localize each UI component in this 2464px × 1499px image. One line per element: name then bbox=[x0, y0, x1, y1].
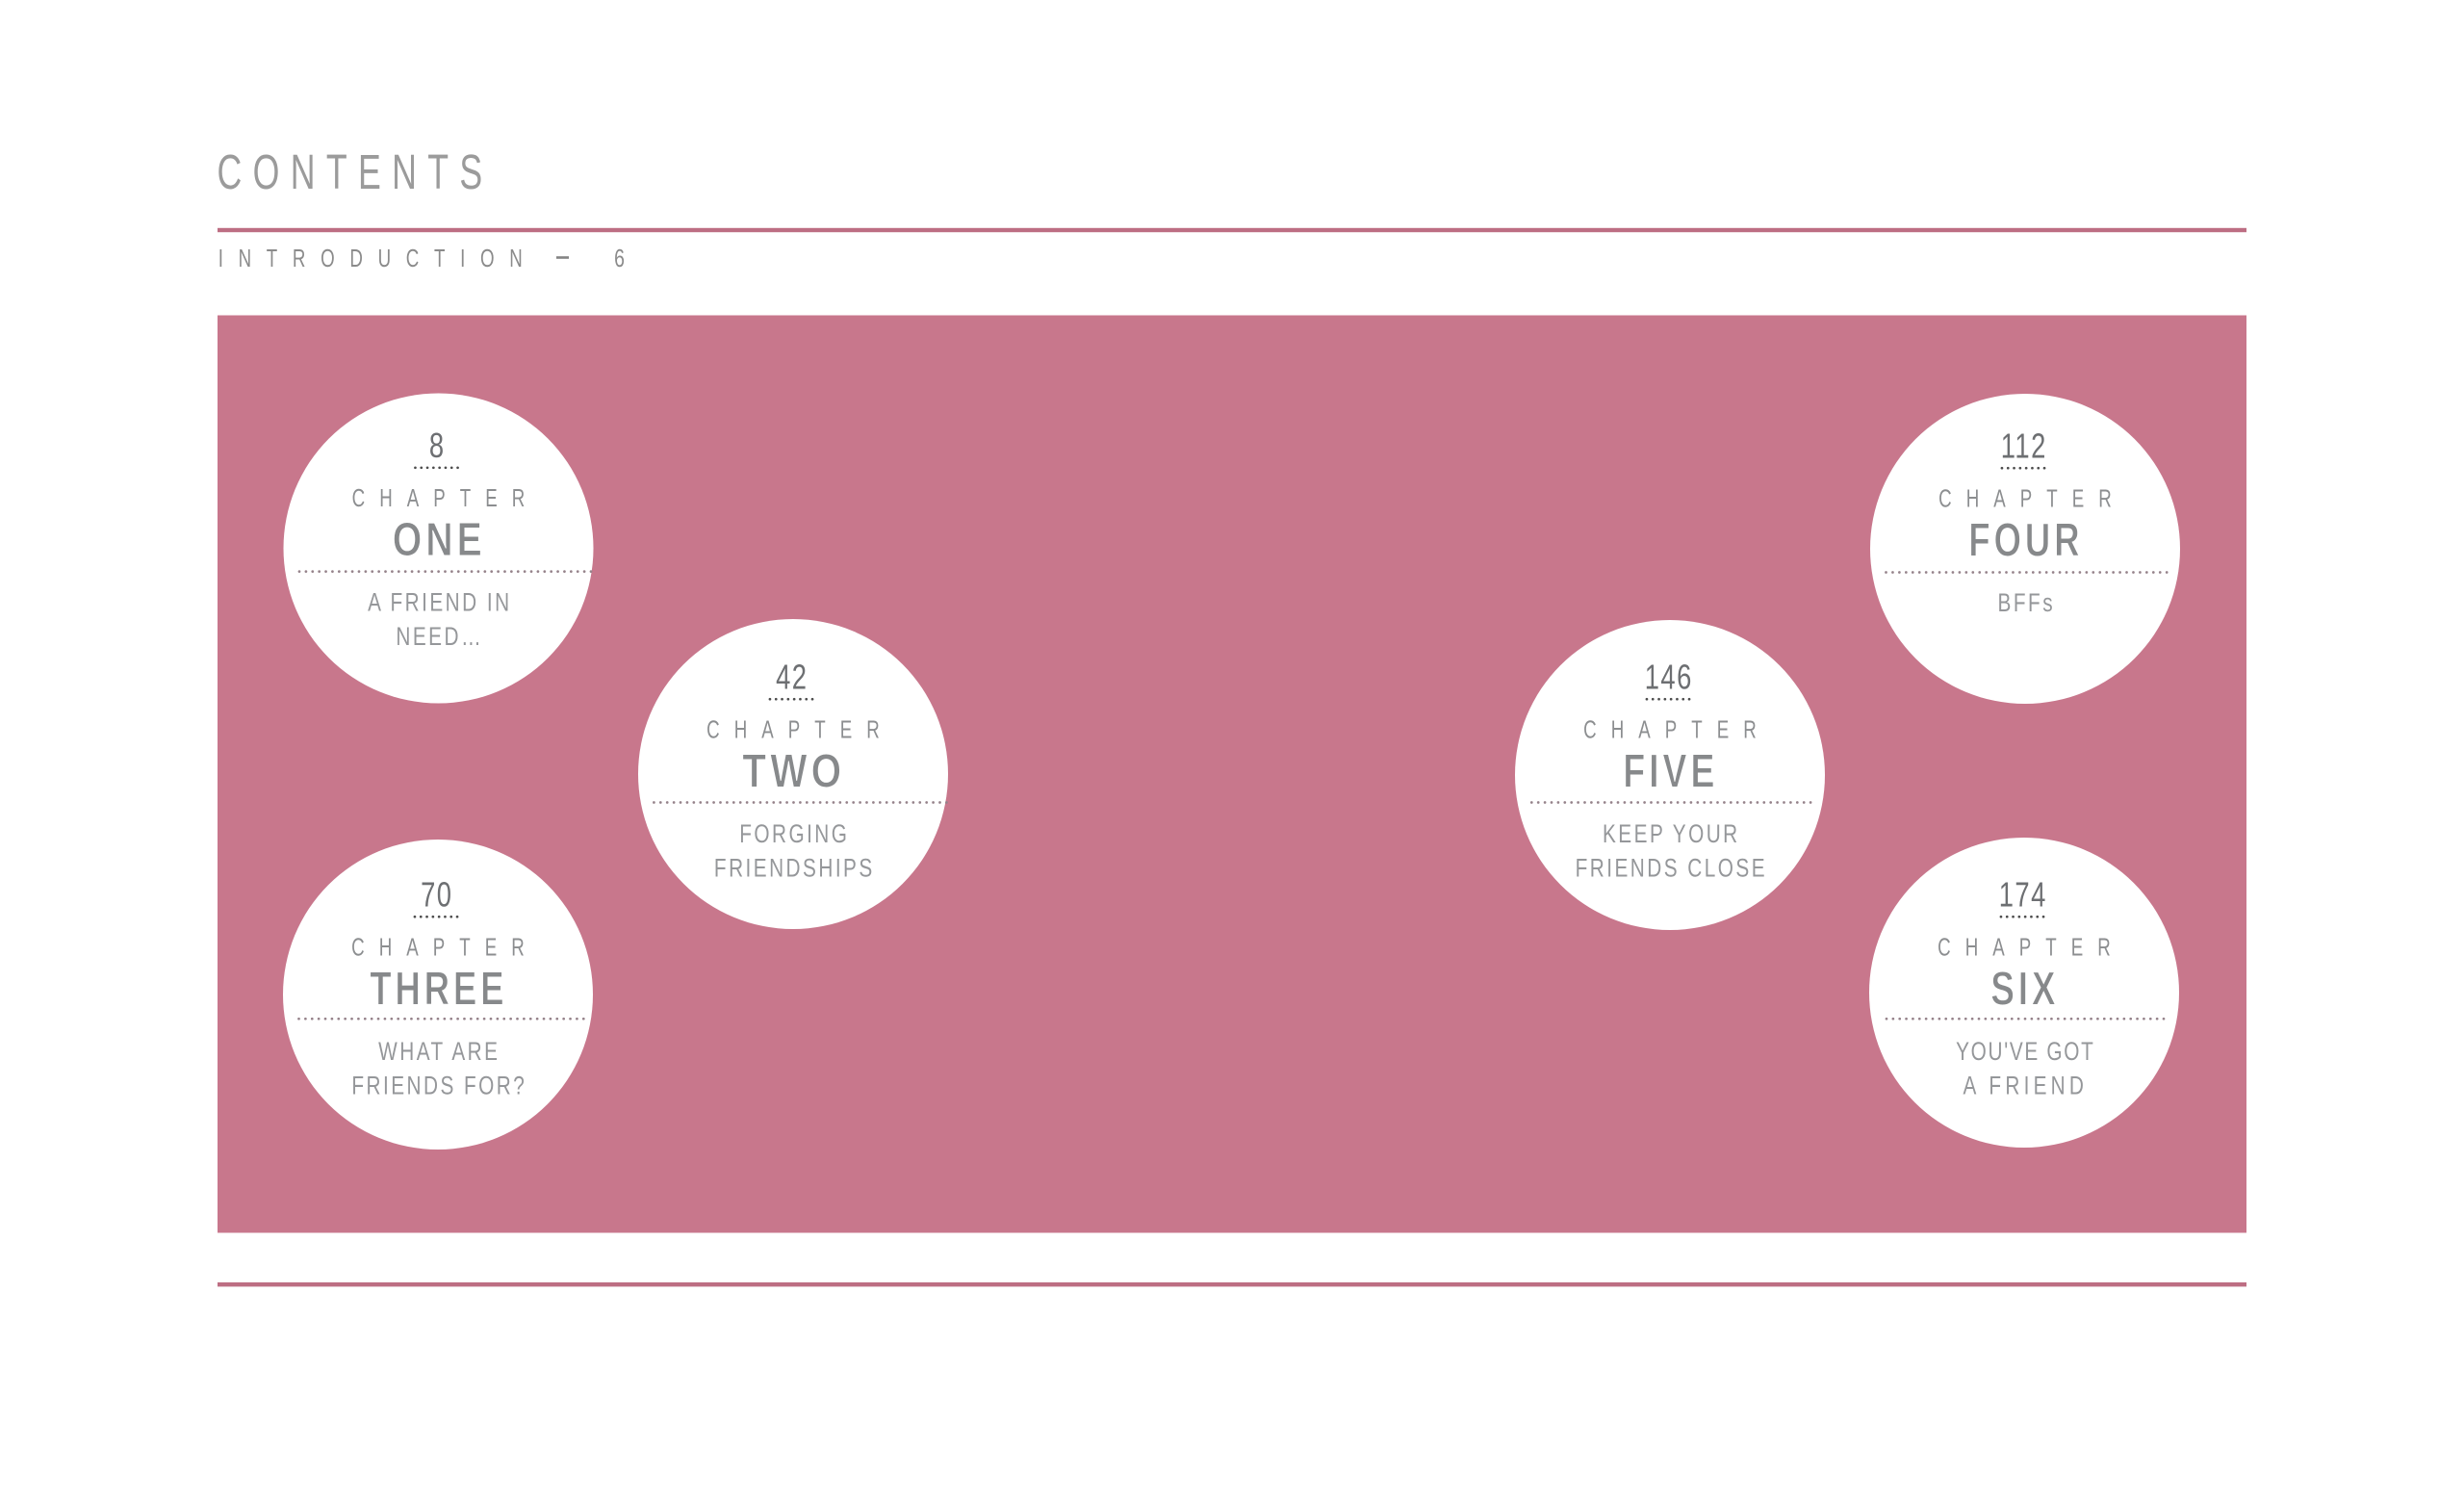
svg-text:146: 146 bbox=[1645, 657, 1693, 696]
svg-text:YOU'VE GOT: YOU'VE GOT bbox=[1956, 1038, 2094, 1067]
svg-text:112: 112 bbox=[2001, 426, 2047, 465]
svg-text:42: 42 bbox=[776, 657, 808, 696]
svg-text:THREE: THREE bbox=[370, 963, 507, 1016]
svg-text:A FRIEND: A FRIEND bbox=[1963, 1072, 2088, 1100]
svg-text:A FRIEND IN: A FRIEND IN bbox=[368, 588, 511, 617]
svg-text:6: 6 bbox=[614, 244, 625, 271]
svg-text:70: 70 bbox=[421, 874, 452, 914]
svg-text:INTRODUCTION: INTRODUCTION bbox=[218, 244, 538, 272]
svg-text:CHAPTER: CHAPTER bbox=[351, 932, 539, 961]
svg-text:BFFs: BFFs bbox=[1998, 589, 2055, 618]
svg-text:TWO: TWO bbox=[742, 745, 845, 798]
svg-text:FRIENDS FOR?: FRIENDS FOR? bbox=[351, 1072, 526, 1100]
svg-text:CHAPTER: CHAPTER bbox=[1583, 714, 1771, 743]
svg-text:CHAPTER: CHAPTER bbox=[1938, 932, 2125, 961]
svg-text:CONTENTS: CONTENTS bbox=[218, 145, 494, 200]
svg-text:NEED…: NEED… bbox=[396, 622, 483, 651]
svg-text:CHAPTER: CHAPTER bbox=[352, 483, 540, 512]
svg-text:FRIENDSHIPS: FRIENDSHIPS bbox=[714, 854, 875, 883]
svg-text:WHAT ARE: WHAT ARE bbox=[378, 1038, 500, 1067]
svg-text:FORGING: FORGING bbox=[739, 820, 849, 849]
svg-text:174: 174 bbox=[1999, 874, 2047, 914]
svg-text:FRIENDS CLOSE: FRIENDS CLOSE bbox=[1576, 854, 1767, 883]
svg-text:KEEP YOUR: KEEP YOUR bbox=[1603, 820, 1740, 849]
svg-text:FIVE: FIVE bbox=[1623, 745, 1718, 798]
svg-text:FOUR: FOUR bbox=[1968, 514, 2083, 567]
svg-text:SIX: SIX bbox=[1990, 963, 2059, 1016]
svg-text:CHAPTER: CHAPTER bbox=[706, 714, 894, 743]
svg-text:ONE: ONE bbox=[393, 513, 486, 566]
svg-text:CHAPTER: CHAPTER bbox=[1938, 483, 2126, 512]
svg-text:8: 8 bbox=[429, 426, 446, 465]
